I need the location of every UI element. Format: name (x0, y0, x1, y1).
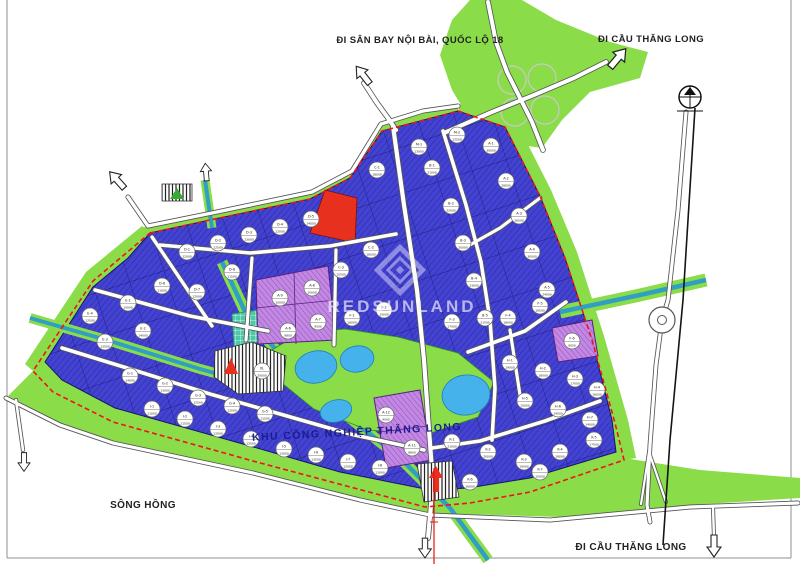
svg-text:B-4: B-4 (471, 276, 477, 280)
parcel-marker: F-516500 (532, 298, 548, 314)
svg-text:K-5: K-5 (591, 435, 596, 439)
parcel-marker: H-218000 (535, 363, 551, 379)
svg-text:9000: 9000 (382, 417, 390, 421)
watermark-text: REDSUNLAND (318, 297, 486, 317)
parcel-marker: F-69000 (564, 333, 580, 349)
parcel-marker: XL20000 (254, 363, 270, 379)
parcel-marker: B-423000 (466, 273, 482, 289)
svg-text:F-4: F-4 (505, 313, 510, 317)
svg-text:A-1: A-1 (488, 141, 494, 145)
svg-text:B-2: B-2 (448, 201, 454, 205)
arrow-north-icon (200, 163, 213, 182)
parcel-marker: D-811500 (224, 264, 240, 280)
svg-text:15000: 15000 (535, 474, 545, 478)
svg-text:M-1: M-1 (416, 142, 422, 146)
parcel-marker: K-715000 (532, 464, 548, 480)
svg-text:20000: 20000 (483, 454, 493, 458)
svg-text:12500: 12500 (452, 137, 462, 141)
svg-text:16000: 16000 (465, 484, 475, 488)
parcel-marker: I-513000 (276, 441, 292, 457)
parcel-marker: I-811000 (372, 460, 388, 476)
svg-text:30000: 30000 (486, 148, 496, 152)
svg-text:11000: 11000 (157, 288, 167, 292)
svg-text:D-8: D-8 (229, 267, 235, 271)
svg-text:11000: 11000 (147, 411, 157, 415)
svg-text:12000: 12000 (275, 229, 285, 233)
svg-text:24000: 24000 (542, 292, 552, 296)
svg-text:A-8: A-8 (309, 283, 315, 287)
svg-text:18000: 18000 (555, 454, 565, 458)
svg-text:M-2: M-2 (454, 130, 460, 134)
parcel-marker: D-313000 (241, 227, 257, 243)
parcel-marker: H-119000 (502, 355, 518, 371)
svg-text:12000: 12000 (192, 294, 202, 298)
svg-text:A-3: A-3 (516, 211, 522, 215)
svg-text:H-4: H-4 (594, 385, 600, 389)
parcel-marker: H-614500 (550, 401, 566, 417)
parcel-marker: E-115000 (120, 295, 136, 311)
svg-text:13000: 13000 (279, 451, 289, 455)
svg-text:18000: 18000 (372, 172, 382, 176)
svg-text:I-1: I-1 (150, 404, 154, 408)
svg-text:A-7: A-7 (315, 317, 321, 321)
svg-text:E-2: E-2 (140, 326, 146, 330)
parcel-marker: G-511500 (257, 406, 273, 422)
parcel-marker: K-616000 (462, 474, 478, 490)
parcel-marker: A-524000 (539, 282, 555, 298)
svg-text:H-5: H-5 (522, 396, 528, 400)
parcel-marker: B-121000 (424, 160, 440, 176)
svg-text:12500: 12500 (193, 400, 203, 404)
north-arrow-icon (677, 86, 703, 111)
svg-text:10000: 10000 (307, 290, 317, 294)
svg-text:14000: 14000 (125, 378, 135, 382)
parcel-marker: I-111000 (144, 401, 160, 417)
parcel-marker: F-418000 (500, 310, 516, 326)
svg-text:XL: XL (260, 366, 264, 370)
parcel-marker: D-514000 (303, 211, 319, 227)
parcel-marker: A-326500 (511, 208, 527, 224)
parcel-marker: B-222000 (443, 198, 459, 214)
svg-text:22000: 22000 (446, 208, 456, 212)
svg-text:13000: 13000 (160, 388, 170, 392)
parcel-marker: K-319000 (516, 454, 532, 470)
parcel-marker: H-515000 (517, 393, 533, 409)
parcel-marker: I-712000 (340, 454, 356, 470)
svg-text:H-1: H-1 (507, 358, 513, 362)
parcel-marker: H-317000 (567, 371, 583, 387)
svg-text:21500: 21500 (480, 320, 490, 324)
parcel-marker: G-114000 (122, 368, 138, 384)
label-bridge-road-north: ĐI CẦU THĂNG LONG (586, 34, 716, 45)
svg-text:I-7: I-7 (346, 457, 350, 461)
svg-text:18000: 18000 (538, 373, 548, 377)
svg-text:12000: 12000 (182, 254, 192, 258)
svg-text:12500: 12500 (85, 318, 95, 322)
parcel-marker: G-213000 (157, 378, 173, 394)
svg-text:23000: 23000 (469, 283, 479, 287)
svg-text:12000: 12000 (343, 464, 353, 468)
parcel-marker: A-129000 (378, 407, 394, 423)
parcel-marker: C-118000 (369, 162, 385, 178)
label-bridge-road-south: ĐI CẦU THĂNG LONG (556, 542, 706, 553)
svg-text:21000: 21000 (427, 170, 437, 174)
parcel-marker: C-315500 (333, 262, 349, 278)
svg-text:16000: 16000 (592, 392, 602, 396)
planning-map: A-130000A-228000A-326500A-430000A-524000… (0, 0, 800, 566)
svg-text:13500: 13500 (100, 344, 110, 348)
svg-text:B-3: B-3 (460, 238, 466, 242)
svg-text:K-3: K-3 (521, 457, 526, 461)
svg-text:19000: 19000 (519, 464, 529, 468)
parcel-marker: A-430000 (524, 244, 540, 260)
svg-text:15000: 15000 (520, 403, 530, 407)
svg-text:C-3: C-3 (338, 265, 344, 269)
svg-text:A-2: A-2 (503, 176, 509, 180)
svg-text:20000: 20000 (458, 245, 468, 249)
parcel-marker: D-712000 (189, 284, 205, 300)
parcel-marker: K-121000 (444, 434, 460, 450)
svg-text:I-8: I-8 (378, 463, 382, 467)
parcel-marker: A-910000 (272, 290, 288, 306)
svg-text:D-5: D-5 (308, 214, 314, 218)
svg-text:11000: 11000 (375, 470, 385, 474)
svg-text:A-12: A-12 (382, 410, 390, 414)
parcel-marker: A-228000 (498, 173, 514, 189)
parcel-marker: E-313500 (97, 334, 113, 350)
svg-text:15500: 15500 (336, 272, 346, 276)
svg-text:F-3: F-3 (449, 317, 454, 321)
parcel-marker: K-517500 (586, 432, 602, 448)
svg-text:21000: 21000 (447, 444, 457, 448)
parcel-marker: D-112000 (179, 244, 195, 260)
svg-text:13000: 13000 (244, 237, 254, 241)
label-airport-road: ĐI SÂN BAY NỘI BÀI, QUỐC LỘ 18 (330, 35, 510, 46)
svg-text:16000: 16000 (347, 320, 357, 324)
parcel-marker: A-69800 (280, 323, 296, 339)
svg-text:20000: 20000 (257, 373, 267, 377)
parcel-marker: I-312000 (210, 421, 226, 437)
svg-text:F-6: F-6 (569, 336, 574, 340)
svg-text:D-2: D-2 (215, 238, 221, 242)
svg-text:D-3: D-3 (246, 230, 252, 234)
svg-text:9800: 9800 (284, 333, 292, 337)
svg-text:H-6: H-6 (555, 404, 561, 408)
svg-text:13500: 13500 (311, 457, 321, 461)
parcel-marker: A-118800 (404, 440, 420, 456)
arrow-bridge-south-icon (707, 535, 721, 557)
label-river: SÔNG HỒNG (93, 500, 193, 511)
svg-text:G-1: G-1 (127, 371, 133, 375)
svg-text:12000: 12000 (227, 408, 237, 412)
svg-text:14000: 14000 (306, 221, 316, 225)
svg-text:19000: 19000 (505, 365, 515, 369)
svg-text:K-4: K-4 (557, 447, 562, 451)
parcel-marker: H-714000 (582, 412, 598, 428)
svg-text:11500: 11500 (260, 416, 270, 420)
svg-text:14500: 14500 (553, 411, 563, 415)
parcel-marker: H-416000 (589, 382, 605, 398)
svg-text:15000: 15000 (123, 305, 133, 309)
svg-text:K-2: K-2 (485, 447, 490, 451)
svg-text:K-6: K-6 (467, 477, 472, 481)
svg-text:14000: 14000 (138, 333, 148, 337)
svg-text:G-2: G-2 (162, 381, 168, 385)
svg-text:18000: 18000 (503, 320, 513, 324)
parcel-marker: E-214000 (135, 323, 151, 339)
svg-text:G-4: G-4 (229, 401, 235, 405)
parcel-marker: K-418000 (552, 444, 568, 460)
parcel-marker: E-412500 (82, 308, 98, 324)
parcel-marker: D-212500 (210, 235, 226, 251)
svg-text:H-2: H-2 (540, 366, 546, 370)
parcel-marker: G-312500 (190, 390, 206, 406)
watermark-logo (366, 244, 434, 296)
svg-text:K-1: K-1 (449, 437, 454, 441)
svg-text:17000: 17000 (447, 324, 457, 328)
svg-text:K-7: K-7 (537, 467, 542, 471)
parcel-marker: D-412000 (272, 219, 288, 235)
svg-text:11500: 11500 (227, 274, 237, 278)
svg-text:12500: 12500 (213, 245, 223, 249)
svg-text:13000: 13000 (414, 149, 424, 153)
svg-text:17000: 17000 (570, 381, 580, 385)
svg-text:9500: 9500 (314, 324, 322, 328)
svg-text:8800: 8800 (408, 450, 416, 454)
svg-text:A-9: A-9 (277, 293, 283, 297)
svg-text:C-1: C-1 (374, 165, 380, 169)
arrow-south-left-icon (18, 453, 30, 472)
svg-text:I-2: I-2 (183, 414, 187, 418)
parcel-marker: M-212500 (449, 127, 465, 143)
svg-text:12000: 12000 (213, 431, 223, 435)
svg-text:I-6: I-6 (314, 450, 318, 454)
svg-text:G-5: G-5 (262, 409, 268, 413)
svg-text:D-7: D-7 (194, 287, 200, 291)
svg-text:E-4: E-4 (87, 311, 93, 315)
svg-text:17500: 17500 (589, 442, 599, 446)
svg-text:A-6: A-6 (285, 326, 291, 330)
svg-text:I-3: I-3 (216, 424, 220, 428)
svg-text:D-6: D-6 (159, 281, 165, 285)
svg-text:E-3: E-3 (102, 337, 108, 341)
parcel-marker: G-412000 (224, 398, 240, 414)
arrow-northwest-icon (104, 167, 129, 193)
svg-text:28000: 28000 (501, 183, 511, 187)
parcel-marker: I-613500 (308, 447, 324, 463)
parcel-marker: A-810000 (304, 280, 320, 296)
svg-text:16500: 16500 (535, 308, 545, 312)
arrow-south-center-icon (419, 538, 432, 558)
parcel-marker: D-611000 (154, 278, 170, 294)
svg-text:D-4: D-4 (277, 222, 283, 226)
svg-text:F-5: F-5 (537, 301, 542, 305)
svg-text:11500: 11500 (180, 421, 190, 425)
parcel-marker: M-113000 (411, 139, 427, 155)
svg-text:9000: 9000 (568, 343, 576, 347)
svg-text:A-5: A-5 (544, 285, 550, 289)
svg-text:26500: 26500 (514, 218, 524, 222)
parcel-marker: K-220000 (480, 444, 496, 460)
parcel-marker: I-211500 (177, 411, 193, 427)
svg-text:H-3: H-3 (572, 374, 578, 378)
svg-text:D-1: D-1 (184, 247, 190, 251)
parcel-marker: A-130000 (483, 138, 499, 154)
svg-text:B-1: B-1 (429, 163, 435, 167)
svg-text:30000: 30000 (527, 254, 537, 258)
svg-text:E-1: E-1 (125, 298, 131, 302)
svg-text:H-7: H-7 (587, 415, 593, 419)
svg-text:I-5: I-5 (282, 444, 286, 448)
parcel-marker: B-320000 (455, 235, 471, 251)
svg-text:10000: 10000 (275, 300, 285, 304)
svg-text:A-11: A-11 (408, 443, 416, 447)
svg-text:14000: 14000 (585, 422, 595, 426)
svg-text:A-4: A-4 (529, 247, 535, 251)
roundabout (649, 307, 675, 333)
svg-text:G-3: G-3 (195, 393, 201, 397)
